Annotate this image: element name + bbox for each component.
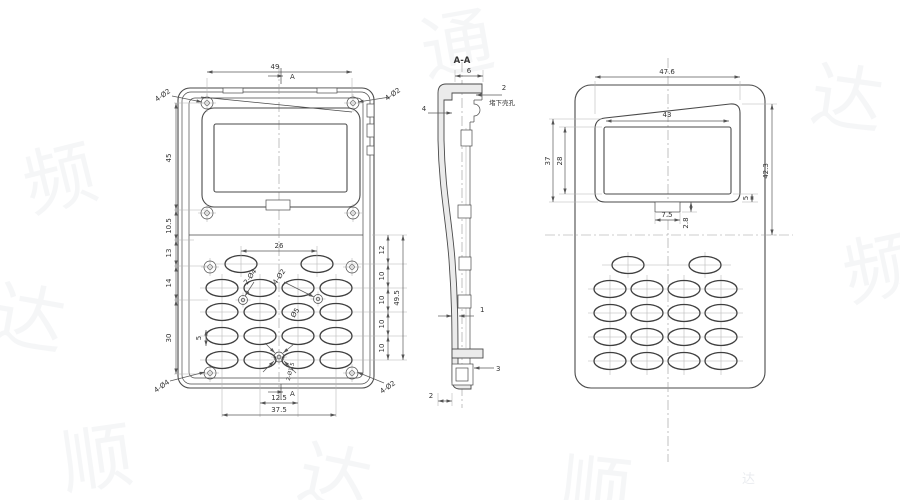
side-clip [367,146,374,155]
dim-left-45: 45 [165,154,173,163]
arrowhead [174,369,177,375]
top-clip [223,88,243,93]
section-boss [458,295,471,308]
label-wall-top: 4 [422,105,427,113]
dim-left-13: 13 [165,249,173,258]
arrowhead [174,103,177,109]
callout-bottom-left: 4-Ø4 [153,378,172,395]
front-keypad [200,251,407,417]
section-view: A-A 6 4 2 堵下壳孔 1 [422,56,516,408]
arrowhead [478,74,484,77]
dim-section-top-right: 2 [502,84,506,92]
arrowhead [551,119,554,125]
dim-button-height: 5 [195,336,203,340]
arrowhead [386,264,389,270]
arrowhead [551,197,554,203]
arrowhead [563,127,566,133]
section-wall [438,84,482,389]
callout-top-left: 4-Ø2 [154,87,172,103]
dim-bottom-full: 37.5 [271,406,287,414]
section-flange [452,349,483,358]
dim-back-tab-offset: 2.8 [682,217,690,228]
arrowhead [174,240,177,246]
section-bottom-box [452,364,473,385]
section-note: 堵下壳孔 [489,98,516,107]
arrowhead [386,336,389,342]
dim-right-10: 10 [378,272,386,281]
arrowhead [174,266,177,272]
arrowhead [260,401,266,404]
dim-right-10: 10 [378,344,386,353]
technical-drawing: 49 A A 45 10.5 13 14 30 [0,0,900,500]
back-screen-window [604,127,731,194]
dim-back-right-small: 5 [742,196,750,200]
arrowhead [386,312,389,318]
section-boss [459,257,471,270]
dim-back-right-overall: 42.3 [762,163,770,179]
front-body-inner-outline [182,92,370,384]
dim-section-width: 6 [467,67,472,75]
arrowhead [386,288,389,294]
arrowhead [222,413,228,416]
callout-screws-left: 2-Ø4 [242,267,259,286]
front-view: 49 A A 45 10.5 13 14 30 [153,63,407,417]
parting-slant-line [201,97,352,112]
arrowhead [174,235,177,241]
arrowhead [386,307,389,313]
dim-back-left-inner: 28 [556,157,564,166]
label-wall-mid: 1 [480,306,484,314]
top-clip [317,88,337,93]
arrowhead [241,249,247,252]
drawing-canvas: 频 达 顺 达 通 达 频 顺 达 49 [0,0,900,500]
arrowhead [174,210,177,216]
back-view: 47.6 43 37 28 42.3 5 7.5 2.8 [544,58,793,462]
dim-bottom-half: 12.5 [271,394,287,402]
bezel-tab [266,200,290,210]
arrowhead [401,355,404,361]
arrowhead [207,70,213,73]
arrowhead [447,399,453,402]
arrowhead [455,74,461,77]
dim-right-10: 10 [378,320,386,329]
arrowhead [595,75,601,78]
dim-row1-spacing: 26 [275,242,284,250]
arrowhead [401,235,404,241]
dim-left-10-5: 10.5 [165,218,173,234]
arrowhead [474,366,480,369]
arrowhead [293,401,299,404]
label-boss: 3 [496,365,500,373]
dim-right-12: 12 [378,246,386,255]
arrowhead [386,283,389,289]
arrowhead [724,119,730,122]
arrowhead [386,355,389,361]
side-clip [367,124,374,137]
arrowhead [386,259,389,265]
arrowhead [563,189,566,195]
dim-back-top-width: 47.6 [659,68,675,76]
section-boss [458,205,471,218]
dim-back-left-outer: 37 [544,157,552,166]
arrowhead [770,104,773,110]
arrowhead [386,331,389,337]
arrowhead [174,300,177,306]
arrowhead [476,93,482,96]
arrowhead [174,261,177,267]
back-keypad [588,252,743,375]
dim-left-14: 14 [165,278,173,287]
dim-left-30: 30 [165,334,173,343]
section-mark-bottom: A [290,390,295,398]
dim-section-bottom: 2 [429,392,433,400]
dim-front-top-width: 49 [271,63,280,71]
arrowhead [331,413,337,416]
arrowhead [312,249,318,252]
dim-back-screen-width: 43 [663,111,672,119]
arrowhead [770,230,773,236]
arrowhead [204,341,207,347]
section-mark-top: A [290,73,295,81]
arrowhead [347,70,353,73]
dim-back-tab-width: 7.5 [661,211,672,219]
dim-right-overall: 49.5 [393,290,401,306]
arrowhead [655,218,661,221]
arrowhead [438,399,444,402]
arrowhead [174,205,177,211]
arrowhead [174,295,177,301]
arrowhead [386,235,389,241]
callout-top-right: 4-Ø2 [384,86,402,102]
dim-right-10: 10 [378,296,386,305]
screen-window [214,124,347,192]
arrowhead [735,75,741,78]
arrowhead [675,218,681,221]
callout-button-dia: Ø5 [289,306,301,319]
front-screw-holes [198,94,362,382]
arrowhead [447,111,453,114]
arrowhead [278,74,284,77]
section-boss [461,130,472,146]
arrowhead [689,202,692,208]
light-hole-bump [474,100,480,122]
arrowhead [606,119,612,122]
side-clip [367,104,374,117]
